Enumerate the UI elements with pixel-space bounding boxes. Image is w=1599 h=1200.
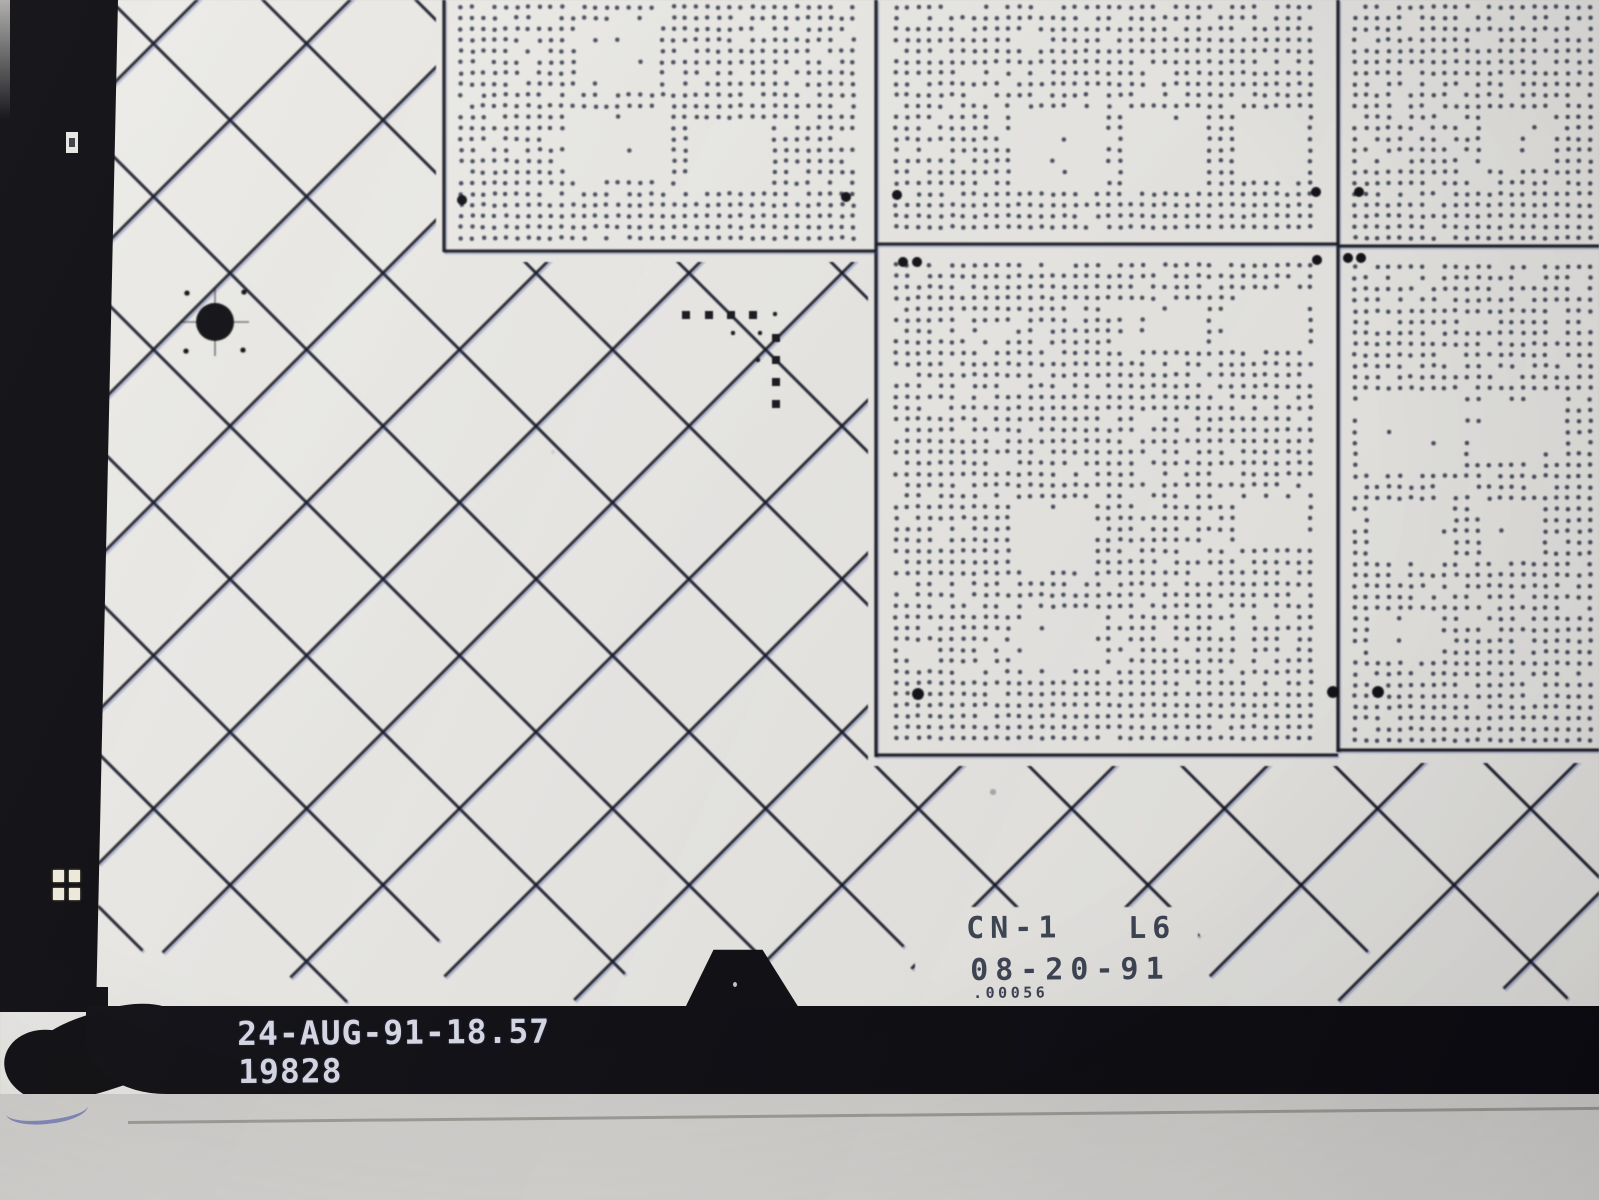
- edge-window-pip: [69, 138, 75, 147]
- photomask-photo: CN-1 L6 08-20-91 .00056 24-AUG-91-18.57 …: [0, 0, 1599, 1200]
- edge-window-marker: [66, 132, 78, 153]
- checker-square: [69, 888, 80, 900]
- checker-square: [53, 888, 64, 900]
- mask-layer-label: L6: [1128, 911, 1176, 946]
- plate-serial-number: 19828: [238, 1051, 343, 1091]
- mask-id-label: CN-1: [966, 910, 1062, 946]
- mask-date-label: 08-20-91: [970, 952, 1171, 988]
- edge-checker-marker: [53, 870, 81, 902]
- checker-square: [53, 870, 64, 882]
- plate-bottom-border: 24-AUG-91-18.57 19828: [86, 1006, 1599, 1094]
- exposure-timestamp: 24-AUG-91-18.57: [237, 1012, 550, 1053]
- mask-dose-label: .00056: [973, 983, 1048, 1002]
- checker-square: [69, 870, 80, 882]
- dust-speck: [733, 982, 737, 987]
- plate-left-edge-highlight: [0, 0, 10, 120]
